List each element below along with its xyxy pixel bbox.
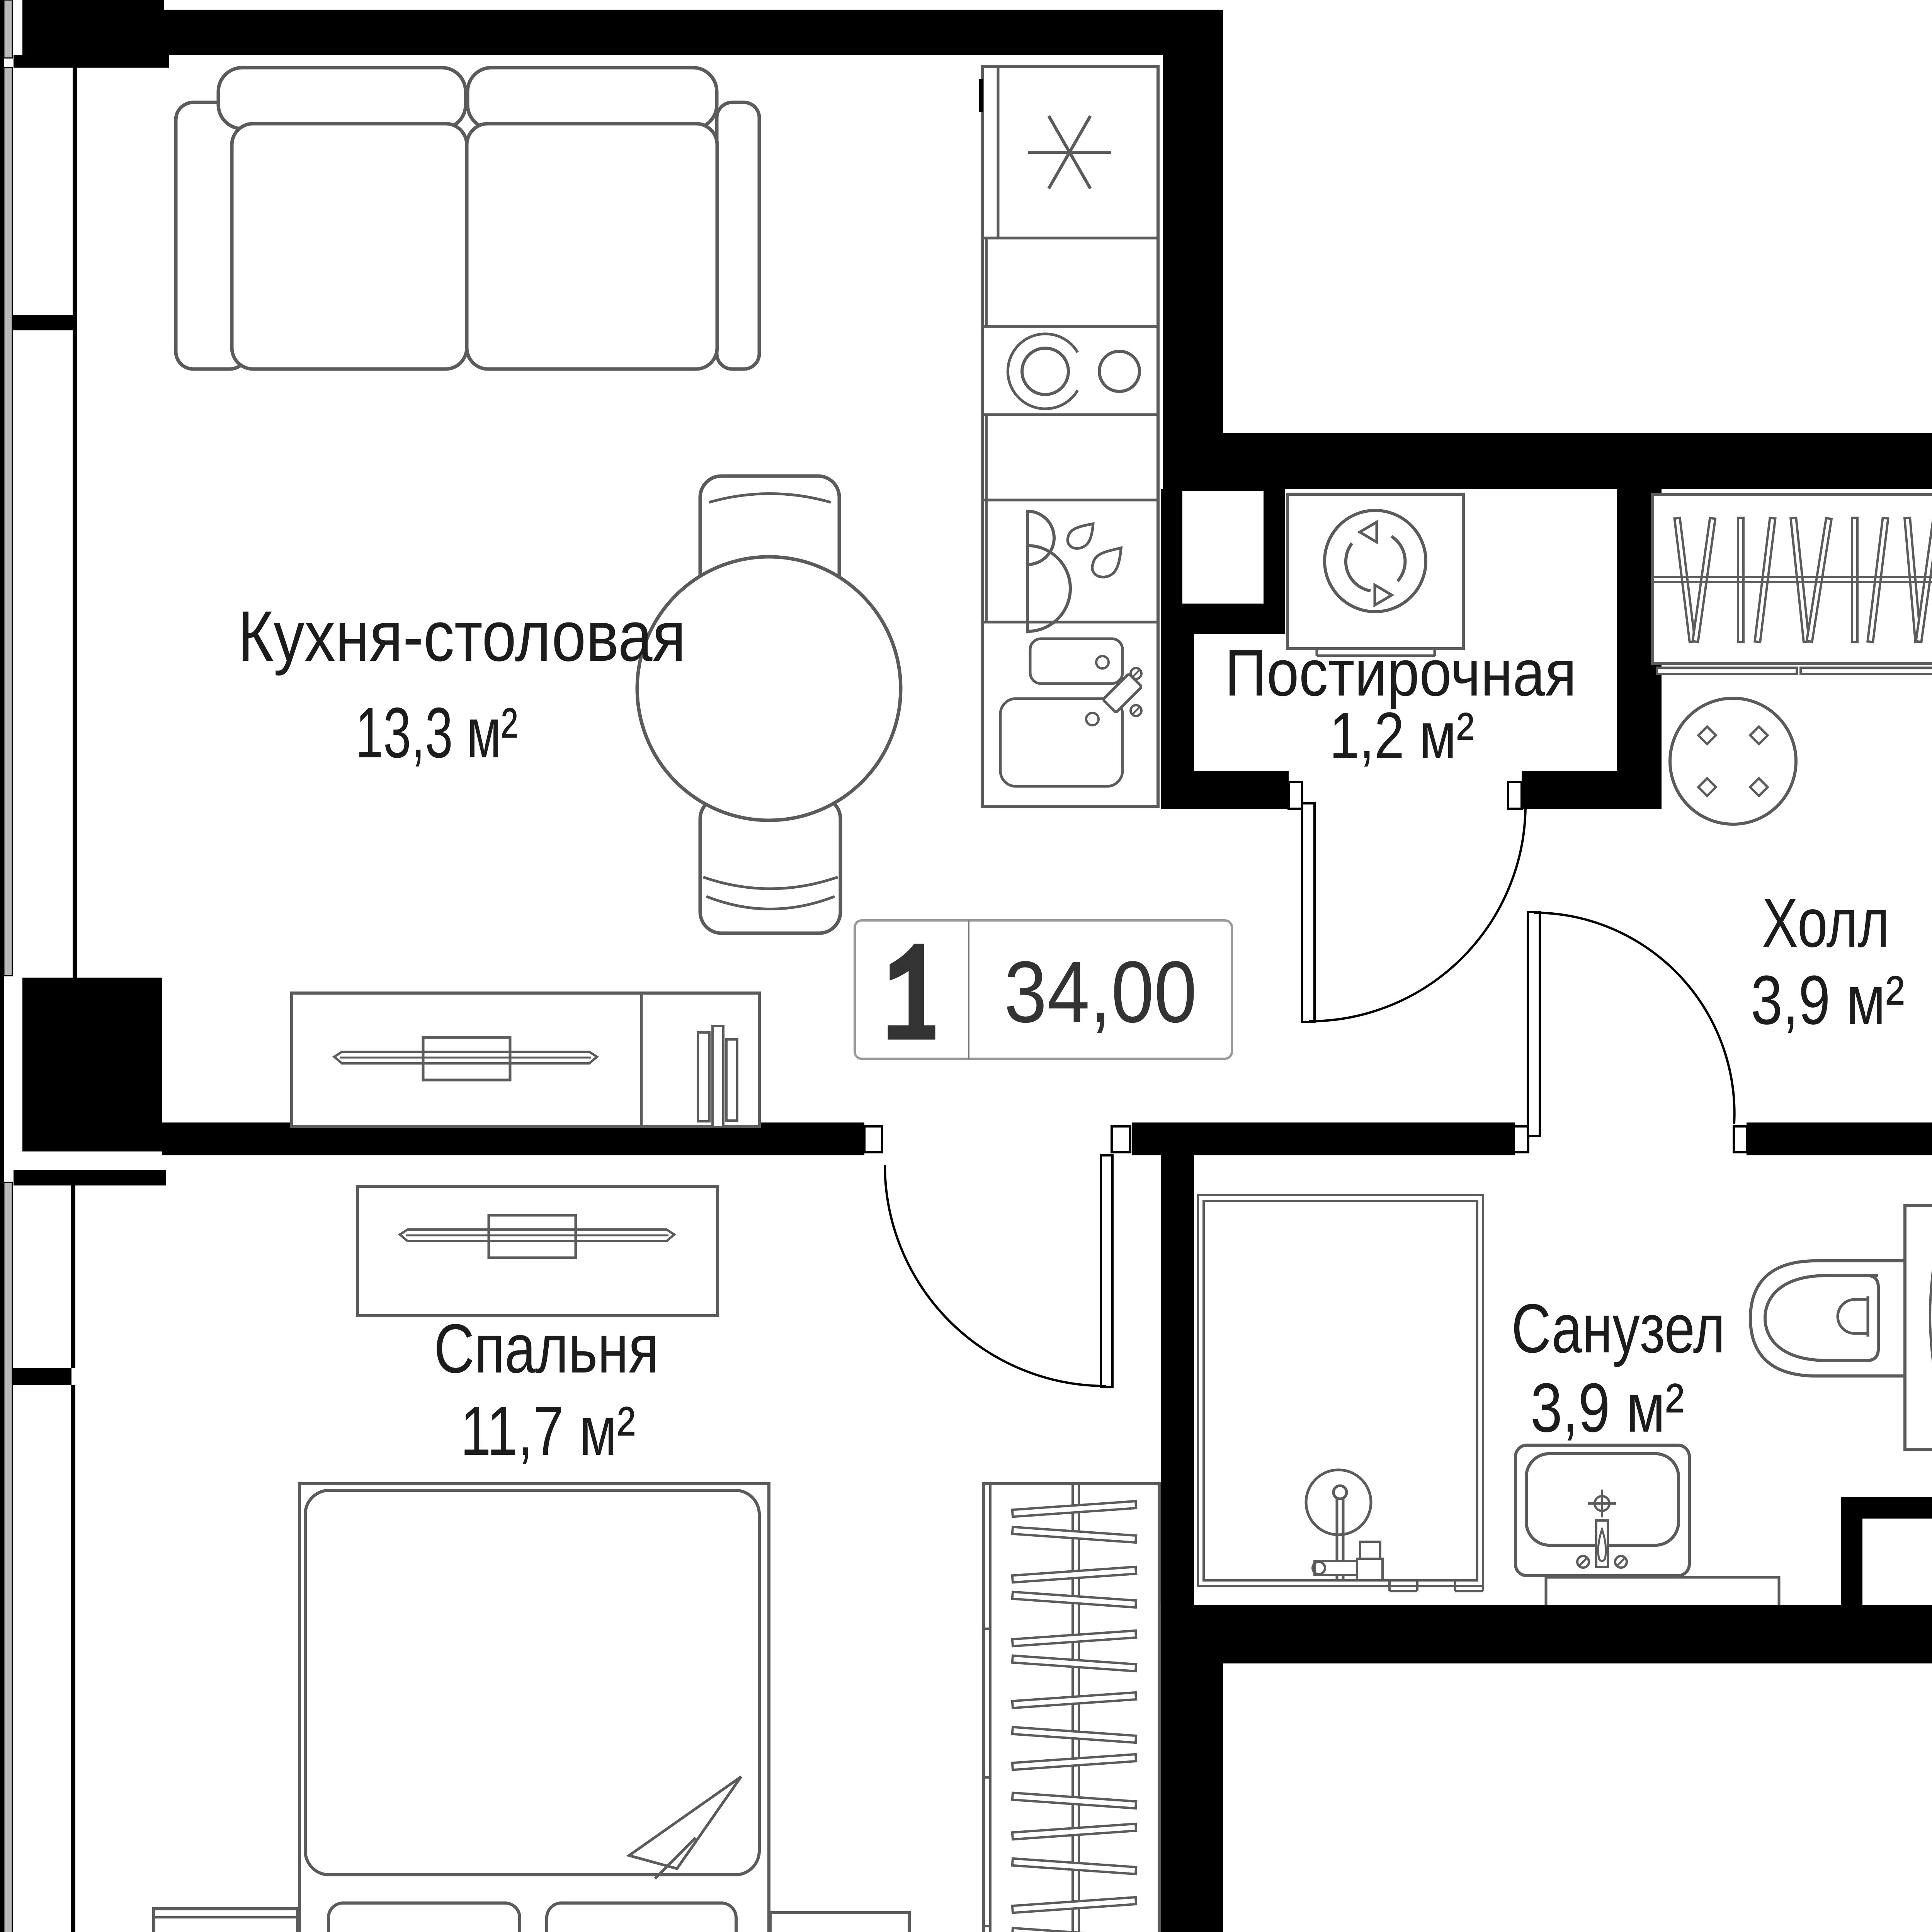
- svg-text:11,7 м²: 11,7 м²: [461, 1392, 636, 1470]
- svg-text:3,9 м²: 3,9 м²: [1751, 961, 1905, 1039]
- svg-text:Холл: Холл: [1762, 884, 1889, 962]
- svg-text:13,3 м²: 13,3 м²: [355, 693, 518, 773]
- svg-text:Спальня: Спальня: [434, 1310, 659, 1388]
- svg-text:3,9 м²: 3,9 м²: [1531, 1369, 1684, 1447]
- svg-text:1,2 м²: 1,2 м²: [1330, 699, 1475, 772]
- svg-text:Кухня-столовая: Кухня-столовая: [238, 597, 686, 676]
- svg-text:34,00: 34,00: [1004, 943, 1197, 1041]
- svg-text:Санузел: Санузел: [1512, 1290, 1725, 1367]
